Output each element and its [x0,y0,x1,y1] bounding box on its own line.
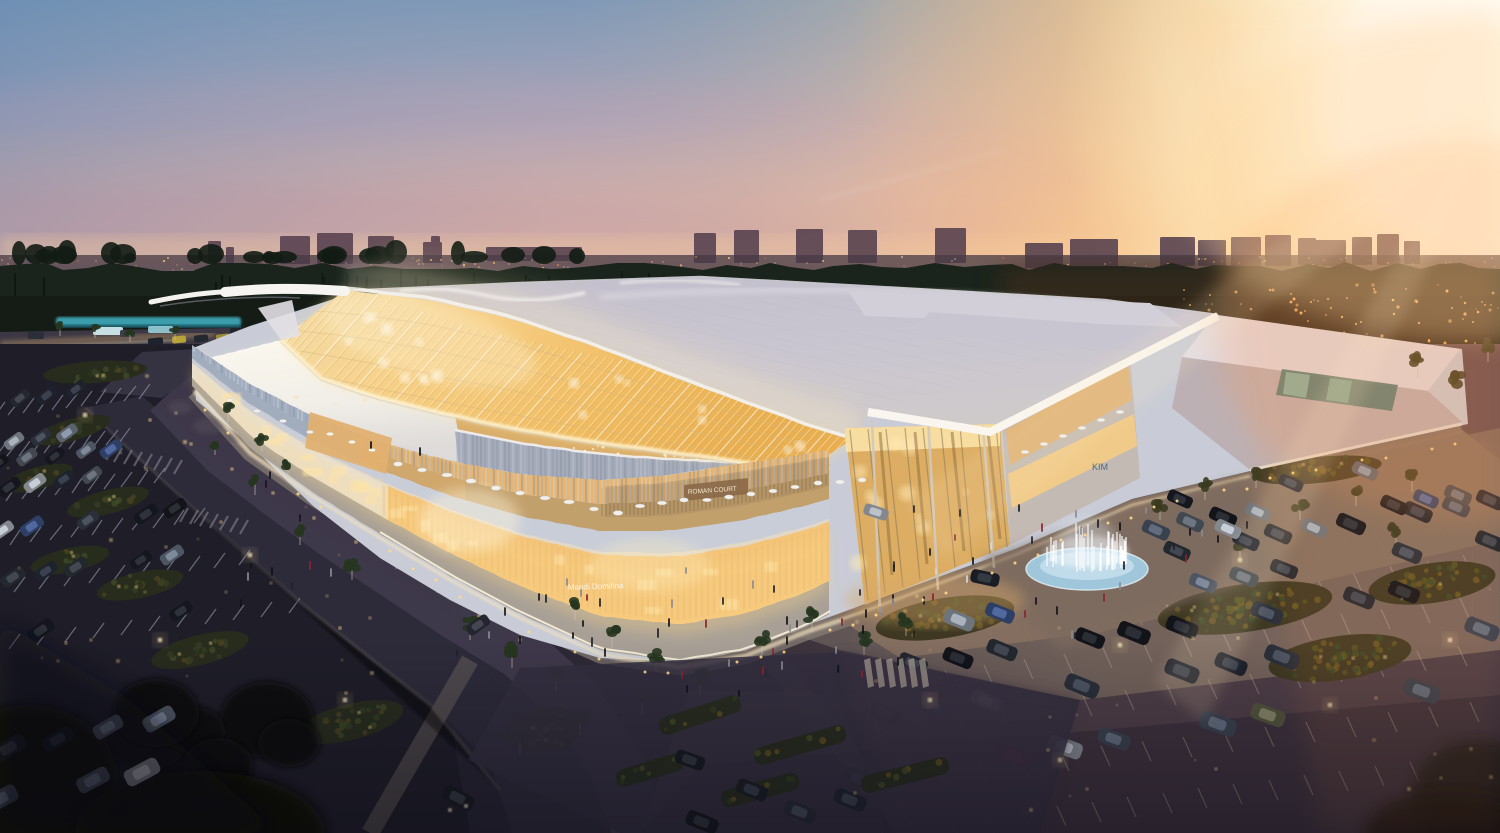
svg-text:KIM: KIM [1092,462,1108,472]
